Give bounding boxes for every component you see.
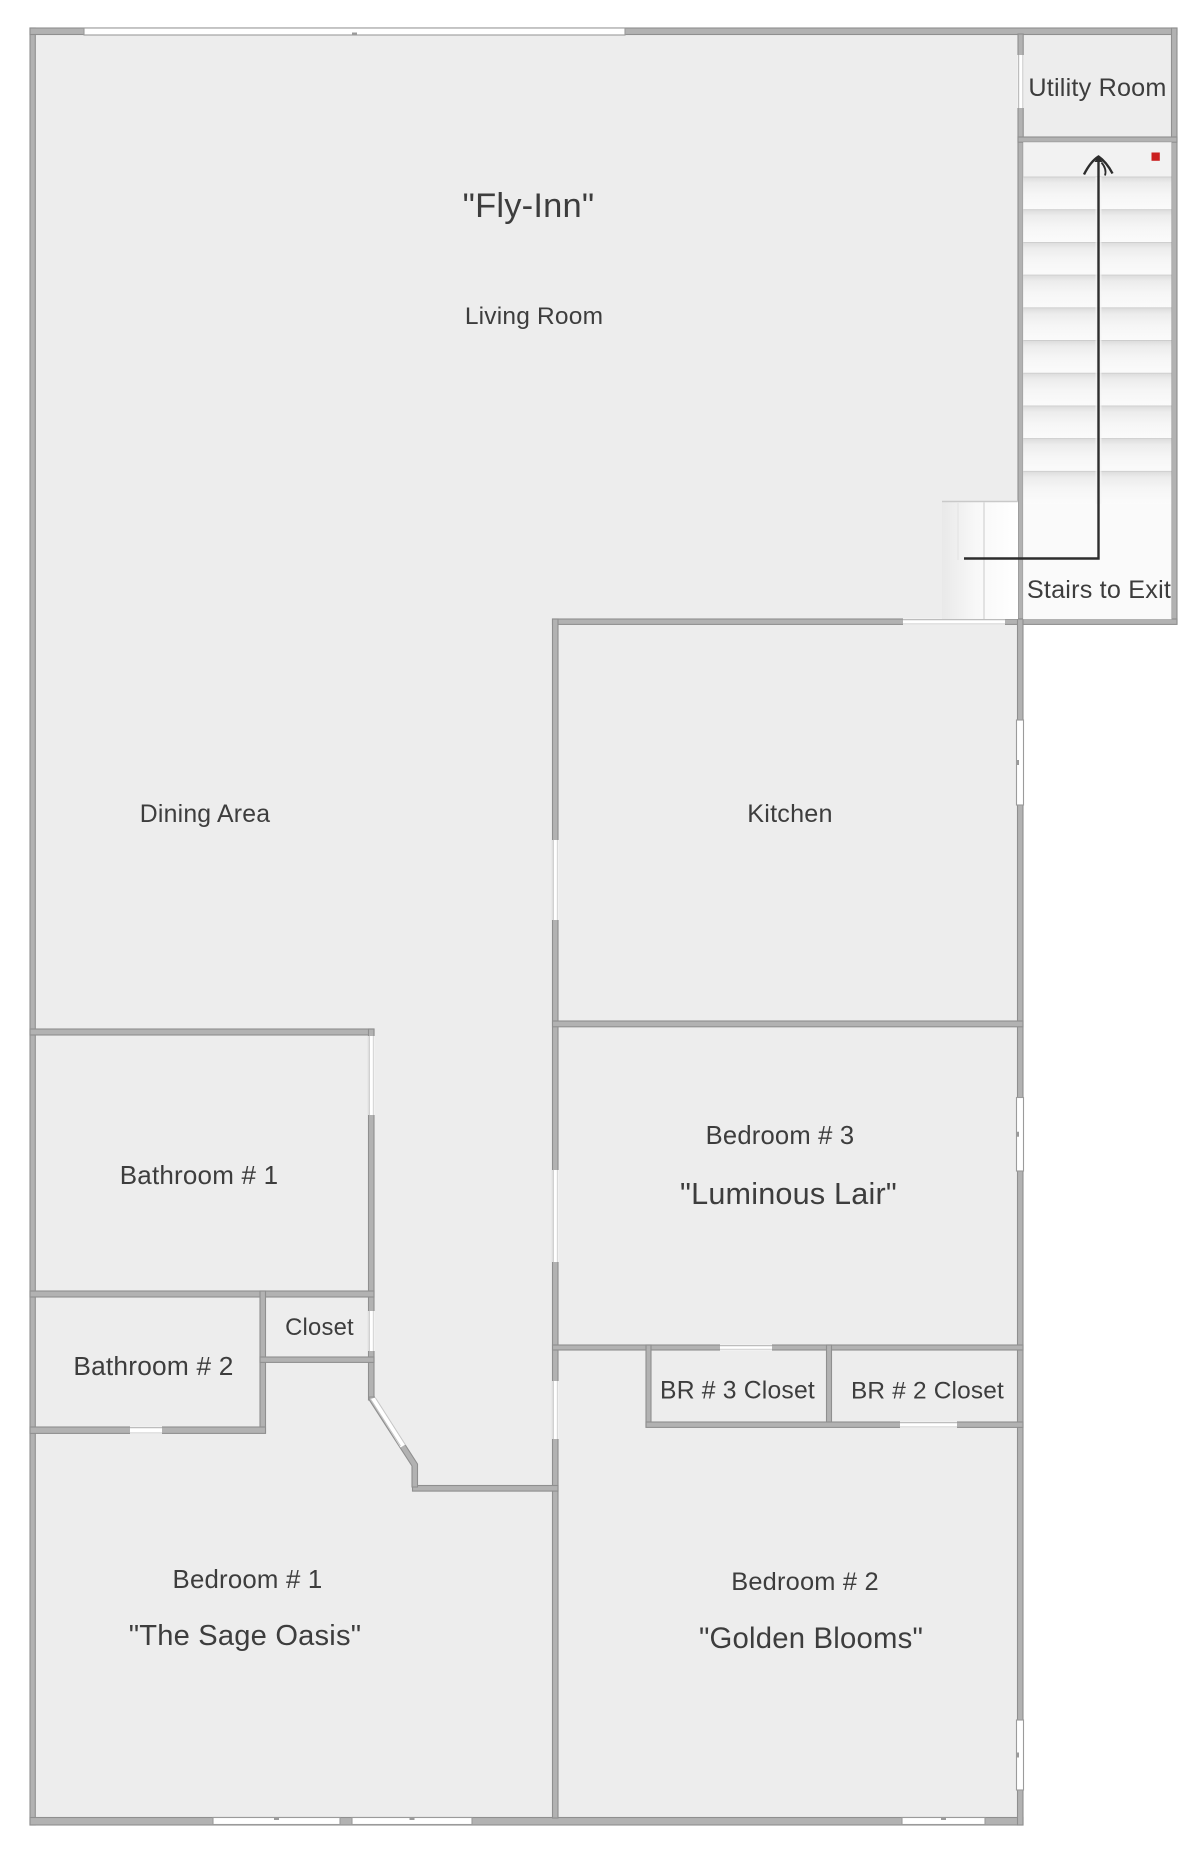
svg-text:Closet: Closet — [285, 1314, 354, 1341]
svg-text:"Golden Blooms": "Golden Blooms" — [699, 1622, 923, 1655]
svg-text:BR # 3 Closet: BR # 3 Closet — [660, 1378, 815, 1405]
svg-text:Kitchen: Kitchen — [747, 800, 832, 828]
svg-text:BR # 2 Closet: BR # 2 Closet — [851, 1378, 1004, 1405]
svg-text:Bathroom # 1: Bathroom # 1 — [120, 1160, 279, 1190]
svg-text:Utility Room: Utility Room — [1028, 74, 1166, 102]
svg-text:Stairs to Exit: Stairs to Exit — [1027, 576, 1171, 604]
svg-text:"The Sage Oasis": "The Sage Oasis" — [129, 1620, 361, 1652]
svg-text:Living Room: Living Room — [465, 303, 603, 330]
svg-text:Bedroom # 1: Bedroom # 1 — [173, 1566, 323, 1594]
svg-text:Bathroom # 2: Bathroom # 2 — [73, 1351, 233, 1381]
svg-text:Bedroom # 3: Bedroom # 3 — [706, 1122, 855, 1150]
svg-text:"Luminous Lair": "Luminous Lair" — [680, 1177, 897, 1211]
svg-text:Bedroom # 2: Bedroom # 2 — [731, 1568, 879, 1596]
svg-text:"Fly-Inn": "Fly-Inn" — [463, 187, 595, 225]
svg-text:Dining Area: Dining Area — [140, 801, 270, 828]
